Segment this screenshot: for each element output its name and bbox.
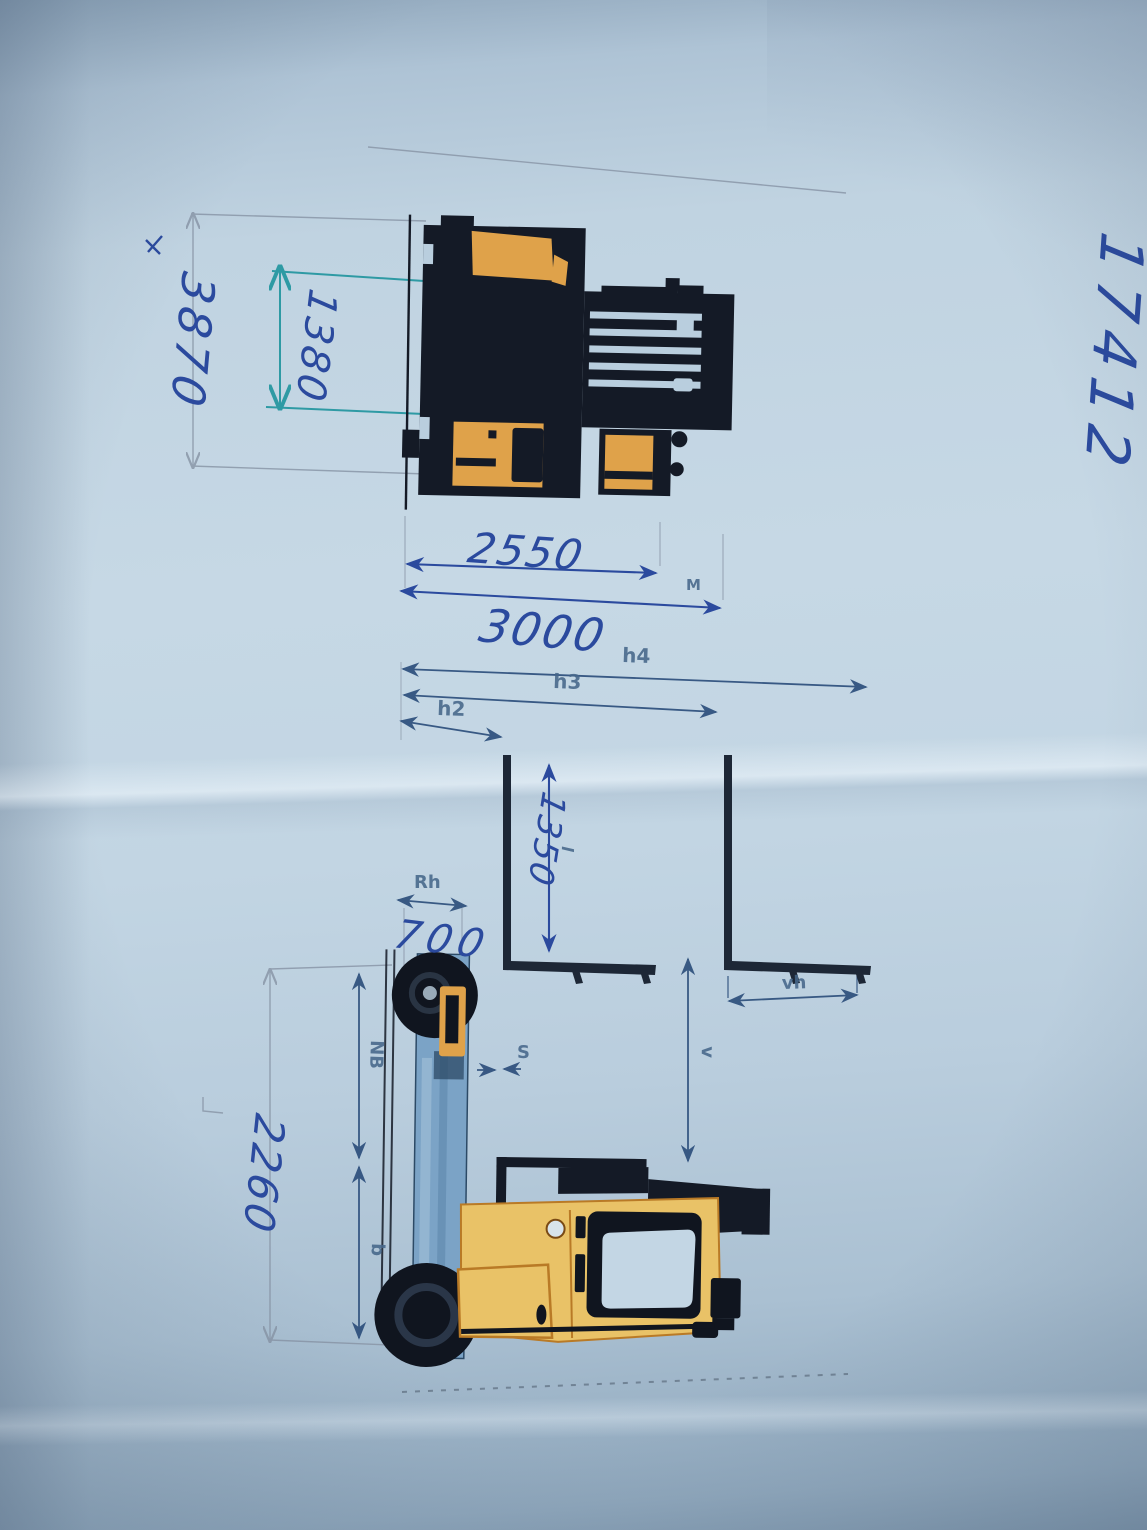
photo-vignette xyxy=(0,0,1147,1530)
photo-of-technical-drawing: 17412 3870 1380 2550 3000 1350 700 2260 … xyxy=(0,0,1147,1530)
